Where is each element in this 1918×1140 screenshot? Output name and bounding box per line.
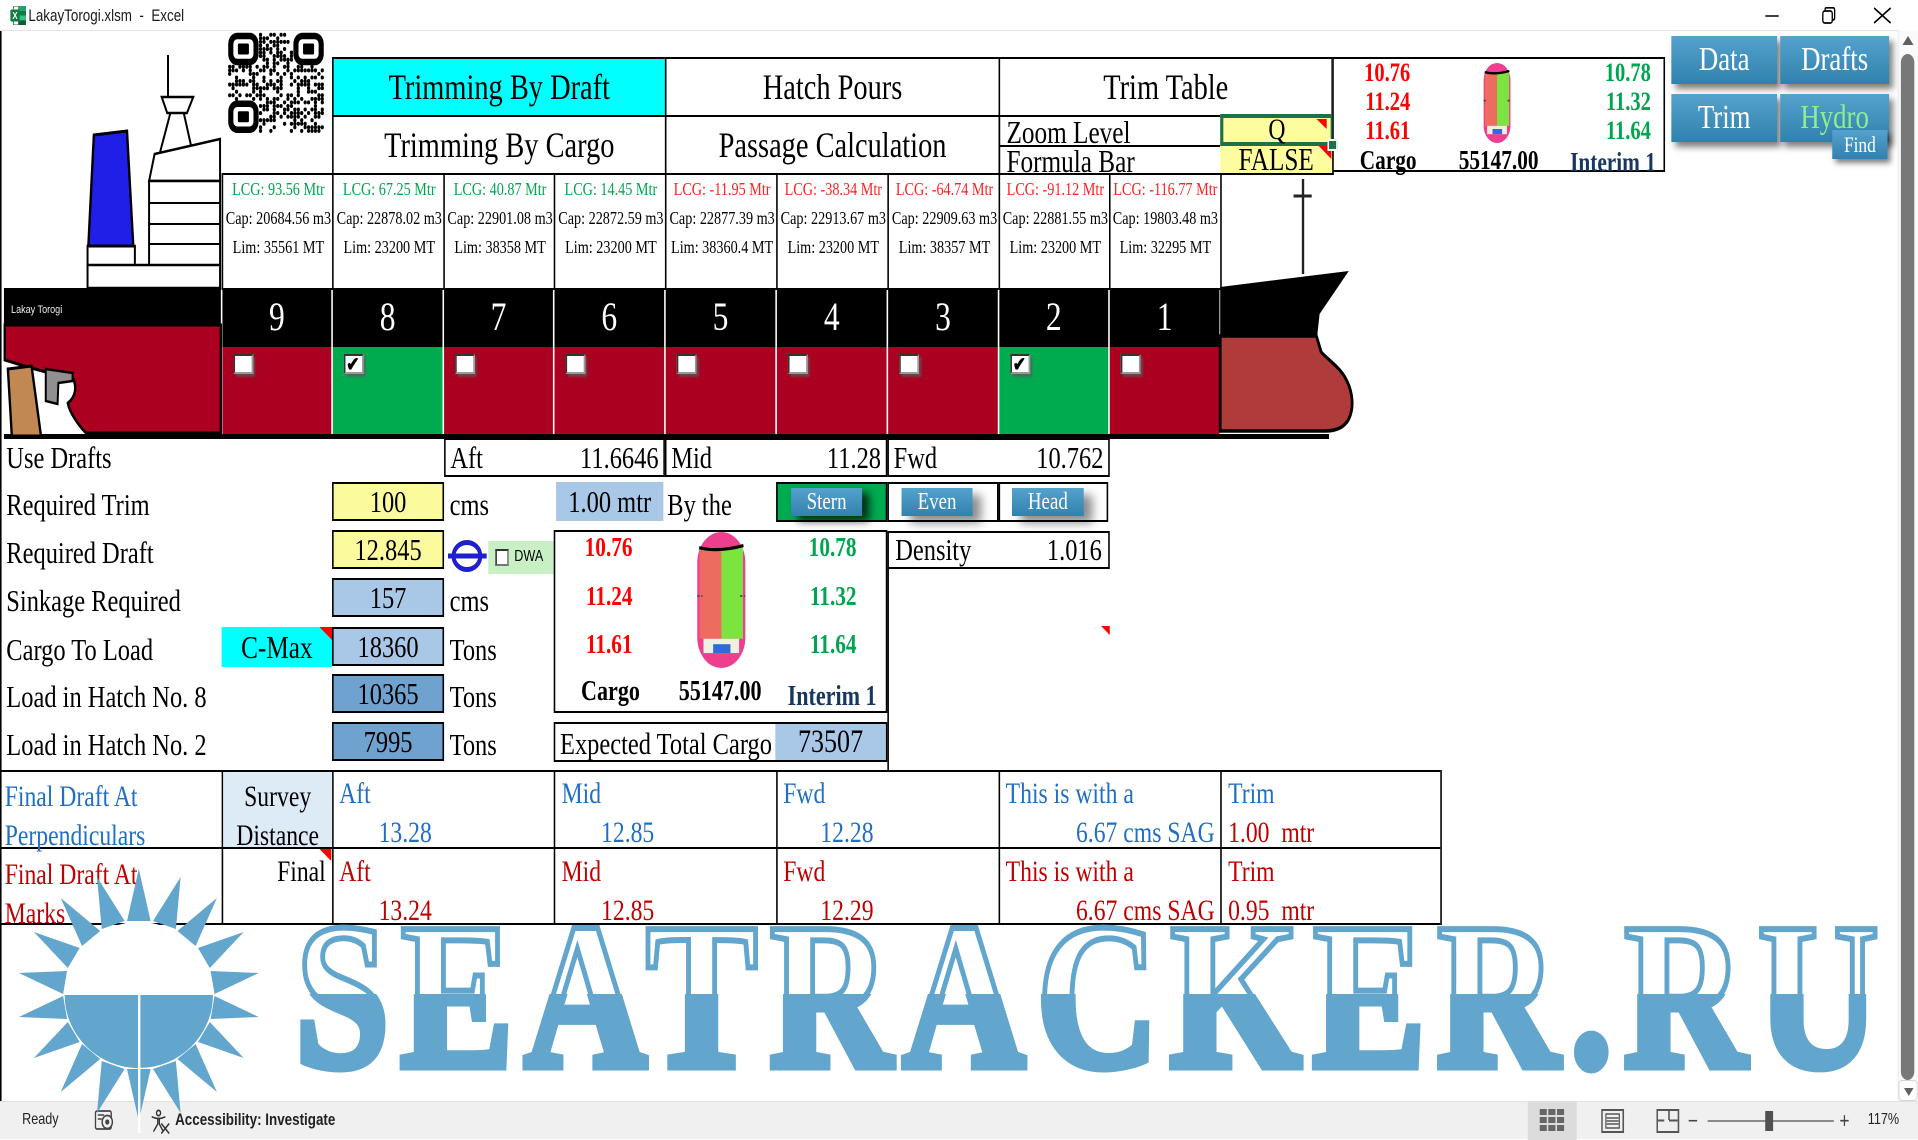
svg-text:X: X: [12, 10, 17, 21]
svg-text:Lakay Torogi: Lakay Torogi: [11, 304, 62, 316]
